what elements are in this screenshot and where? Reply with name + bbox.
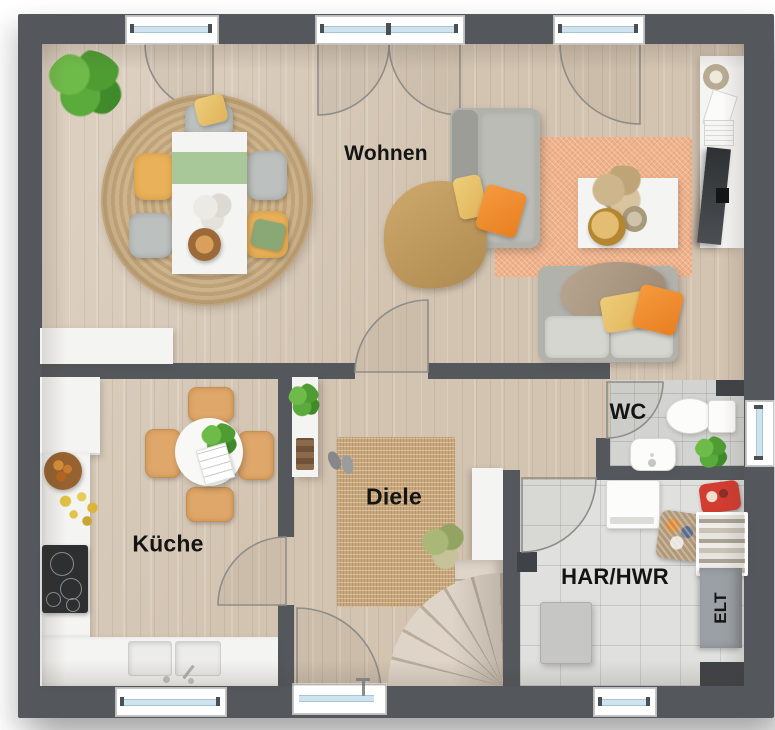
room-label-elt: ELT [711, 592, 731, 623]
room-label-kueche: Küche [132, 531, 203, 558]
window-har-tick-l [598, 697, 602, 706]
wc-plant [694, 436, 728, 470]
palm-plant [46, 50, 124, 120]
boiler [540, 602, 592, 664]
duct-har-corner [700, 662, 744, 686]
book-stack [704, 120, 734, 146]
table-runner [172, 152, 247, 184]
room-label-har-hwr: HAR/HWR [561, 564, 669, 590]
cooktop-burner-4 [66, 598, 80, 612]
front-door-handle-bar [356, 678, 370, 681]
sink-tap-dot-2 [188, 678, 194, 684]
decor-bowl [188, 228, 221, 261]
cooktop-burner-3 [46, 592, 61, 607]
stair-wall [472, 468, 503, 560]
basin-faucet [648, 459, 656, 467]
decor-vase [703, 64, 729, 90]
dining-sideboard [40, 328, 173, 364]
fruit-bowl [44, 452, 82, 490]
kitchen-chair-bottom [186, 487, 234, 522]
sink-basin-right [175, 641, 221, 676]
sink-basin-left [128, 641, 172, 676]
kitchen-chair-top [188, 387, 234, 422]
french-door-tick-r [454, 24, 458, 33]
window-wc-tick-t [754, 405, 763, 409]
cleaning-caddy [698, 479, 742, 514]
room-label-wc: WC [609, 399, 646, 425]
window-living-tick-r [634, 24, 638, 33]
window-living-glass [558, 26, 638, 33]
tv-mount [716, 188, 729, 203]
washing-machine-panel [610, 517, 654, 524]
room-label-diele: Diele [366, 484, 422, 511]
fridge [40, 377, 100, 455]
shoe-cabinet-boxes [296, 438, 314, 470]
window-kitchen-glass [120, 699, 220, 706]
wall-kitchen-hall-lower [278, 605, 294, 686]
kitchen-chair-right [238, 431, 274, 480]
window-dining-tick-l [130, 24, 134, 33]
window-wc-glass [756, 405, 763, 460]
floor-plan: Wohnen Küche Diele WC HAR/HWR ELT [0, 0, 775, 730]
window-kitchen-tick-r [216, 697, 220, 706]
dining-chair-left [134, 153, 174, 200]
french-door-tick-c [386, 23, 391, 35]
wall-living-hall [428, 363, 610, 379]
dining-chair-bottom-left [129, 213, 172, 258]
yellow-flowers [52, 488, 106, 532]
gold-tray [588, 208, 626, 246]
sink-tap-dot-1 [163, 676, 170, 683]
toilet-tank [708, 400, 736, 433]
window-wc-tick-b [754, 456, 763, 460]
cooktop-burner-1 [50, 552, 74, 576]
room-label-wohnen: Wohnen [344, 142, 428, 166]
toilet-bowl [666, 398, 714, 434]
flower-centerpiece [189, 191, 236, 232]
french-door-tick-l [320, 24, 324, 33]
sofa-seat-left [545, 316, 609, 358]
utility-shelf [696, 512, 748, 576]
window-har-glass [598, 699, 650, 706]
window-living-tick-l [558, 24, 562, 33]
wall-har-left [503, 470, 520, 686]
window-dining-tick-r [208, 24, 212, 33]
dining-chair-right [247, 151, 287, 200]
duct-wc-corner [716, 380, 744, 396]
front-door-glass [299, 695, 374, 702]
duct-har-left [517, 552, 537, 572]
window-har-tick-r [646, 697, 650, 706]
shoe-cabinet-plant [288, 383, 320, 419]
cooktop-burner-2 [60, 578, 82, 600]
window-kitchen-tick-l [120, 697, 124, 706]
window-dining-glass [130, 26, 212, 33]
